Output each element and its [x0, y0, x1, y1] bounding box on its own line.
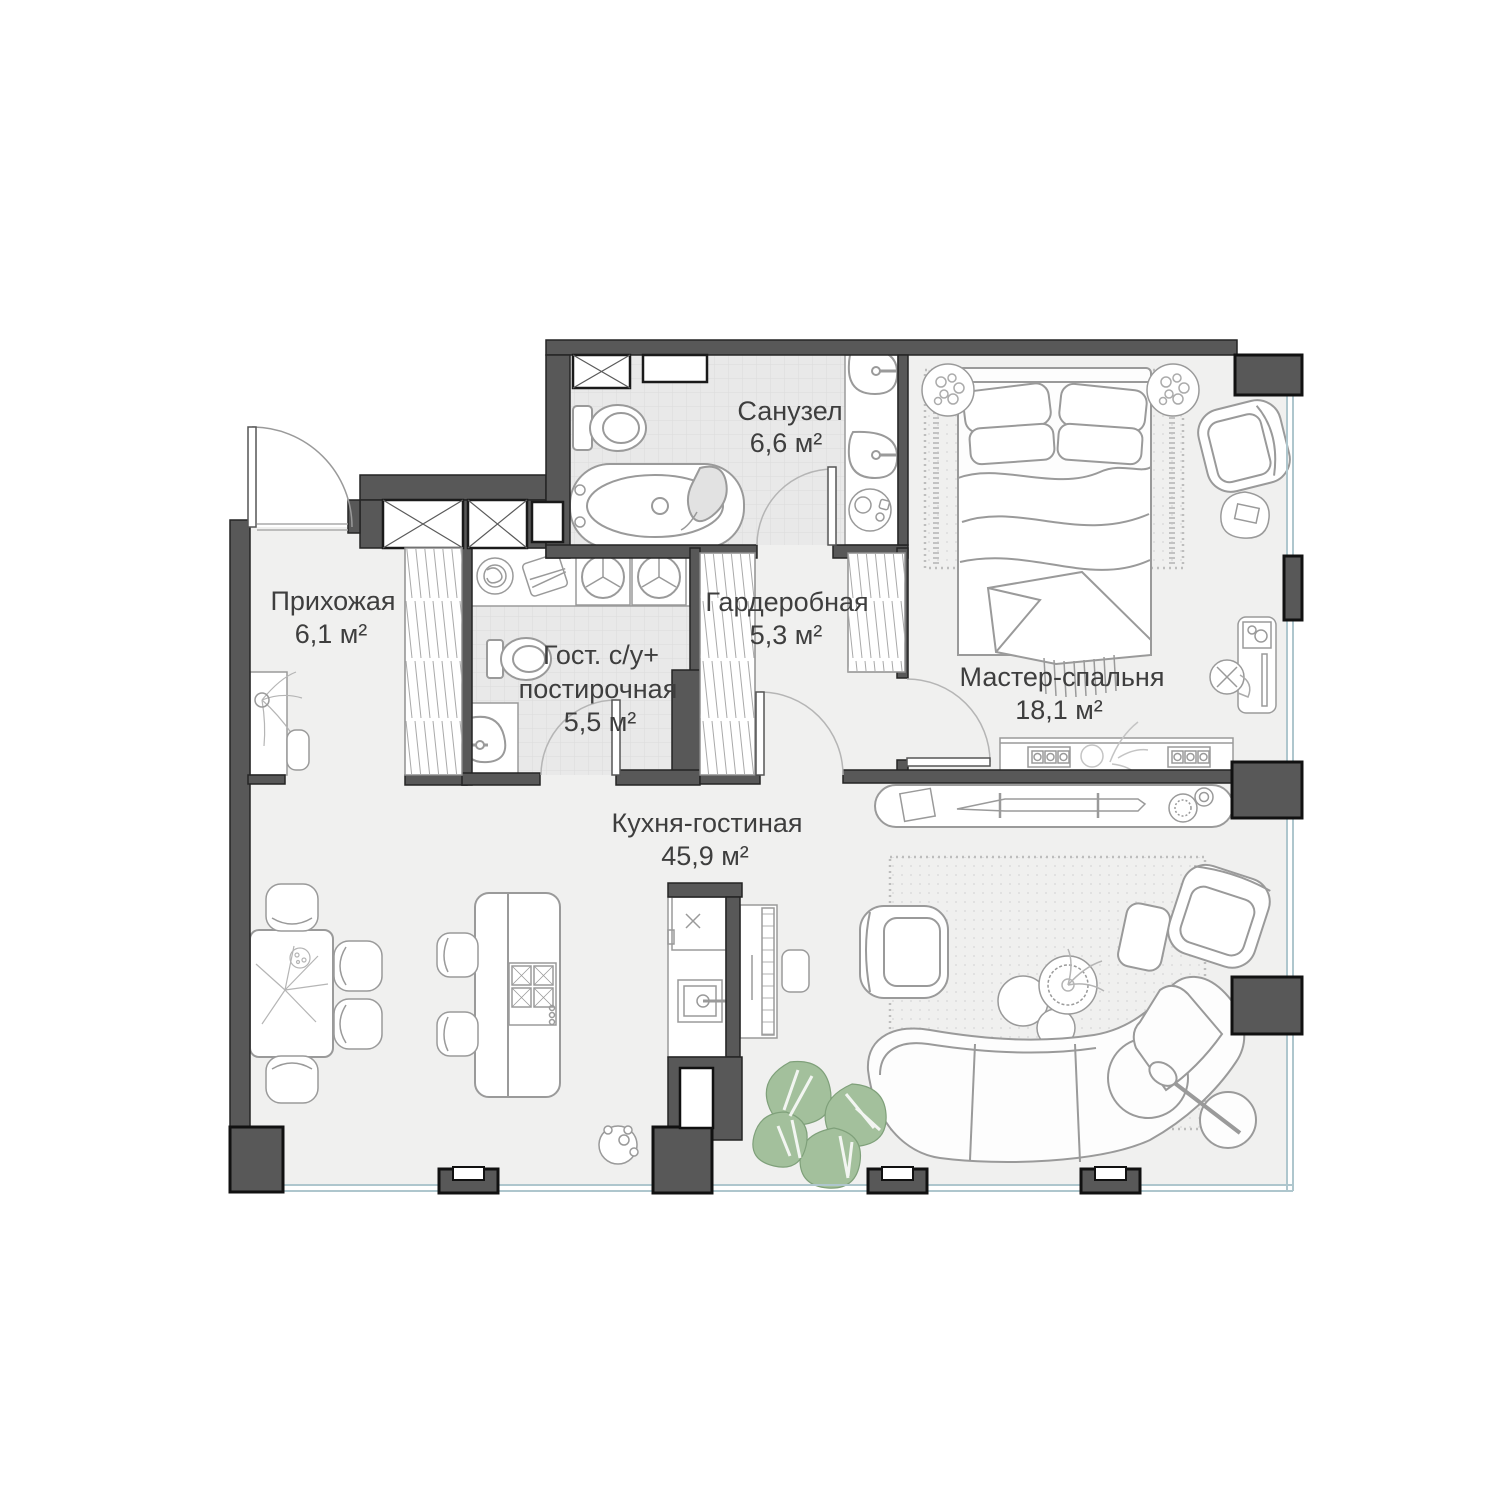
wall-top — [546, 340, 1237, 355]
label-sanuzel-name: Санузел — [737, 396, 842, 426]
bed — [958, 368, 1151, 697]
label-kitchen-name: Кухня-гостиная — [611, 808, 802, 838]
robot-vacuum — [599, 1126, 638, 1164]
wall-wc-bottom — [462, 773, 540, 785]
wall-wc-bottom-right — [616, 770, 700, 785]
pier-right-small — [1284, 556, 1302, 620]
living-armchair — [860, 906, 948, 998]
laundry-basket — [477, 558, 513, 594]
wall-hall-stub — [248, 775, 285, 784]
vent-shaft — [573, 355, 630, 388]
toilet — [573, 405, 646, 451]
dining-table — [250, 930, 333, 1057]
kitchen-island — [475, 893, 560, 1097]
label-guest-wc-name-line2: постирочная — [519, 674, 678, 704]
bedroom-side-table — [1221, 492, 1269, 538]
label-guest-wc-area: 5,5 м² — [564, 707, 637, 737]
pier-right-mid — [1232, 762, 1302, 818]
floor-plan-drawing: Санузел 6,6 м² Прихожая 6,1 м² Гардеробн… — [0, 0, 1500, 1500]
nightstand — [922, 364, 974, 416]
bathroom-tray — [849, 489, 891, 531]
entry-door — [248, 427, 352, 530]
hallway-wardrobe — [405, 548, 462, 775]
dining-chair — [266, 1056, 318, 1103]
wall-left — [230, 520, 250, 1130]
bar-stool — [437, 1012, 478, 1056]
vent-shaft — [468, 500, 527, 548]
pier-bottom — [1081, 1167, 1140, 1193]
kitchen-counter — [875, 785, 1233, 827]
corner-block-bottom-left — [230, 1127, 283, 1192]
pier-bottom — [439, 1167, 498, 1193]
bathtub — [570, 464, 744, 548]
wall-chimney-band — [726, 897, 740, 1057]
hallway-pouf — [287, 730, 309, 770]
label-master-area: 18,1 м² — [1015, 695, 1103, 725]
wall-bath-right — [898, 355, 908, 545]
wall-gard-bottom-left — [700, 775, 760, 784]
bar-stool — [437, 933, 478, 977]
wall-niche — [532, 502, 563, 542]
label-guest-wc-name-line1: Гост. с/у+ — [543, 640, 659, 670]
label-garderobnaya-name: Гардеробная — [705, 587, 868, 617]
dining-chair — [334, 941, 382, 991]
dining-chair — [334, 999, 382, 1049]
side-table — [782, 950, 809, 992]
vent-shaft — [383, 500, 463, 548]
kitchen-tall-counter — [668, 897, 728, 1057]
label-master-name: Мастер-спальня — [960, 662, 1165, 692]
dining-chair — [266, 884, 318, 931]
label-kitchen-area: 45,9 м² — [661, 841, 749, 871]
label-garderobnaya-area: 5,3 м² — [750, 620, 823, 650]
label-prihozhaya-area: 6,1 м² — [295, 619, 368, 649]
chimney-inner — [680, 1068, 713, 1128]
label-prihozhaya-name: Прихожая — [270, 586, 395, 616]
wall-chimney-cap — [668, 883, 742, 897]
wall-hall-top — [360, 475, 546, 500]
wall-niche — [643, 355, 707, 382]
label-sanuzel-area: 6,6 м² — [750, 428, 823, 458]
pillow — [969, 423, 1055, 465]
corner-block-top-right — [1235, 355, 1302, 395]
tall-cabinet — [740, 905, 777, 1038]
floor-plan-page: Санузел 6,6 м² Прихожая 6,1 м² Гардеробн… — [0, 0, 1500, 1500]
wall-wardrobe-stub — [405, 775, 467, 785]
nightstand — [1147, 364, 1199, 416]
pier-bottom — [868, 1167, 927, 1193]
pillow — [1057, 423, 1143, 465]
pier-kitchen-chimney — [653, 1127, 712, 1193]
wall-divider — [843, 770, 1233, 783]
pier-right-low — [1232, 977, 1302, 1034]
